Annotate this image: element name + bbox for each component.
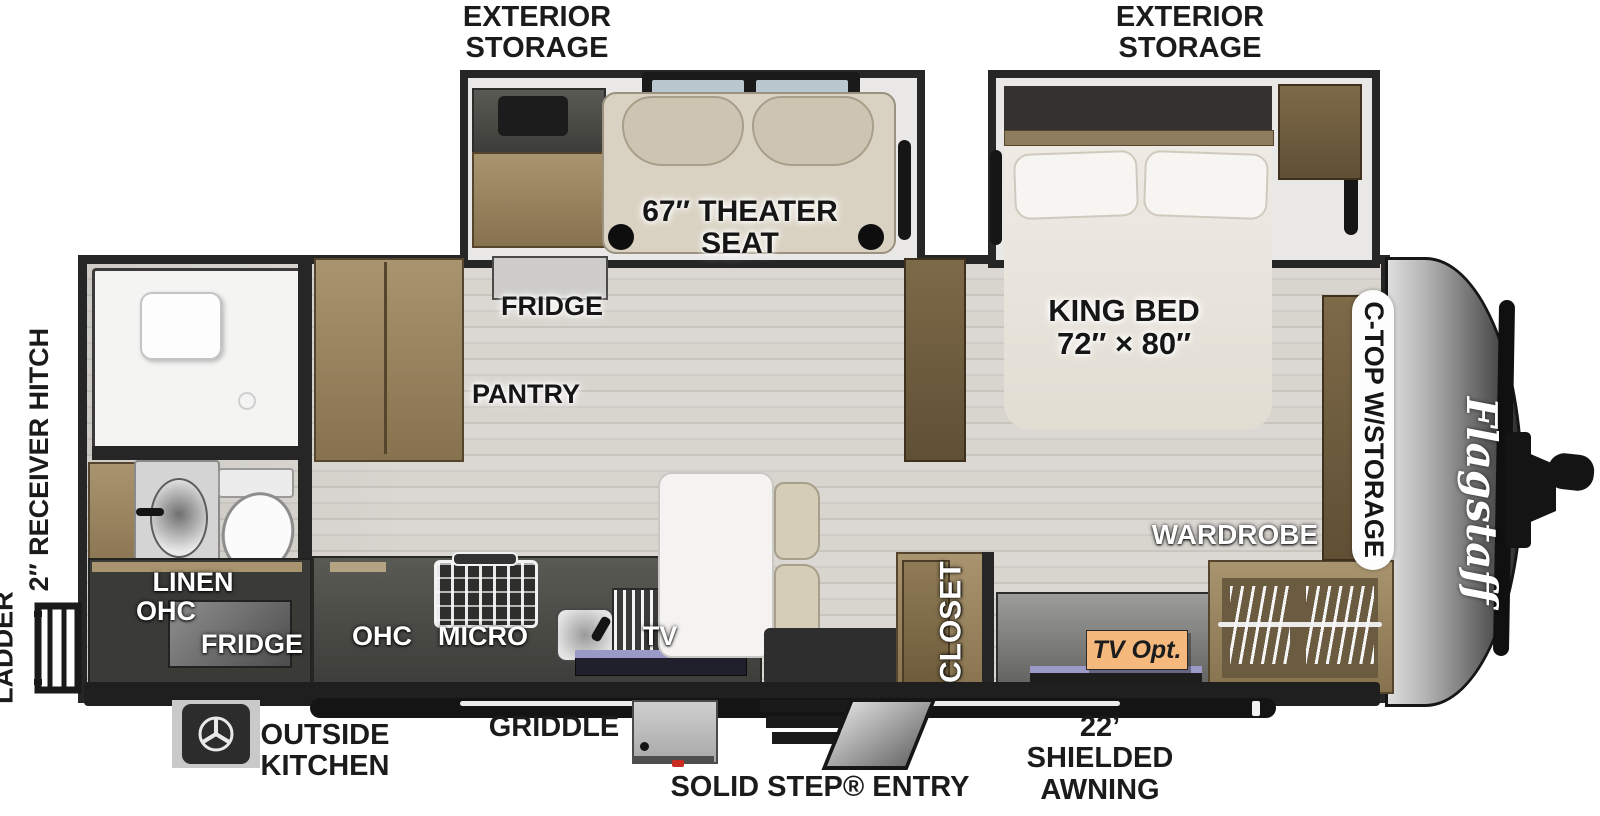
pantry-label: PANTRY (456, 380, 596, 409)
receiver-hitch-label: 2″ RECEIVER HITCH (25, 328, 54, 591)
bed-side-window-left (990, 150, 1002, 245)
theater-side-window (898, 140, 911, 240)
ctop-label-wrap: C-TOP W/STORAGE (1352, 290, 1394, 570)
king-bed-line2: 72″ × 80″ (984, 327, 1264, 360)
hitch-handle (1546, 452, 1596, 493)
bathroom-wall-vertical (298, 255, 312, 575)
rear-fridge-label: FRIDGE (192, 630, 312, 659)
ctop-label: C-TOP W/STORAGE (1358, 302, 1387, 559)
ladder-label: LADDER (0, 591, 19, 704)
chair (774, 482, 820, 560)
headboard-storage (1004, 86, 1272, 130)
vent-fan-glyph (194, 712, 238, 756)
headboard-shelf (1004, 130, 1274, 146)
hutch-tray (498, 96, 568, 136)
theater-seat-label: 67″ THEATER SEAT (590, 196, 890, 261)
griddle-unit (632, 700, 718, 764)
ohc-label: OHC (344, 622, 420, 651)
exterior-storage-line2: STORAGE (1090, 33, 1290, 64)
theater-seat-back (622, 96, 744, 166)
bathroom-wall-horizontal (92, 446, 308, 460)
outside-kitchen-line2: KITCHEN (240, 751, 410, 782)
exterior-storage-line2: STORAGE (437, 33, 637, 64)
closet-label-wrap: CLOSET (912, 552, 992, 692)
theater-seat-line1: 67″ THEATER (590, 196, 890, 228)
griddle-knob (640, 742, 649, 751)
awning-end-cap (1252, 701, 1260, 716)
pillow (1143, 150, 1269, 220)
exterior-storage-label-left: EXTERIOR STORAGE (437, 2, 637, 65)
linen-line2: OHC (128, 597, 258, 626)
micro-label: MICRO (428, 622, 538, 651)
king-bed-label: KING BED 72″ × 80″ (984, 294, 1264, 361)
exterior-storage-line1: EXTERIOR (1090, 2, 1290, 33)
outside-kitchen-line1: OUTSIDE (240, 720, 410, 751)
brand-logo-wrap: Flagstaff (1452, 340, 1512, 660)
linen-ohc-label: LINEN OHC (128, 568, 258, 626)
stove-handle (452, 552, 518, 566)
fridge-label: FRIDGE (482, 292, 622, 321)
awning-label: 22’ SHIELDED AWNING (1005, 712, 1195, 806)
wardrobe-label: WARDROBE (1140, 520, 1330, 550)
closet-label: CLOSET (936, 561, 968, 683)
pantry-seam (384, 262, 387, 454)
entry-mat (764, 628, 902, 686)
bathroom-faucet (136, 508, 164, 516)
exterior-storage-label-right: EXTERIOR STORAGE (1090, 2, 1290, 65)
stove-grate (434, 560, 538, 628)
exterior-storage-line1: EXTERIOR (437, 2, 637, 33)
outside-kitchen-label: OUTSIDE KITCHEN (240, 720, 410, 783)
receiver-hitch-label-wrap: 2″ RECEIVER HITCH (22, 295, 58, 625)
pantry-cabinet (314, 258, 464, 462)
hangers (1306, 586, 1374, 664)
pillow (1013, 150, 1139, 220)
tv-opt-badge: TV Opt. (1086, 630, 1188, 670)
awning-line1: 22’ SHIELDED (1005, 712, 1195, 775)
bathroom-sink (150, 478, 208, 558)
slide-hutch-cabinet (472, 152, 606, 248)
awning-line2: AWNING (1005, 775, 1195, 806)
griddle-label: GRIDDLE (484, 712, 624, 743)
linen-line1: LINEN (128, 568, 258, 597)
theater-seat-line2: SEAT (590, 228, 890, 260)
shower-seat (140, 292, 222, 360)
king-bed-line1: KING BED (984, 294, 1264, 327)
theater-seat-back (752, 96, 874, 166)
tv-opt-label: TV Opt. (1093, 637, 1182, 664)
bedroom-divider-cabinet (904, 258, 966, 462)
solid-step-label: SOLID STEP® ENTRY (650, 772, 990, 803)
tv-label: TV (630, 622, 690, 651)
floorplan-canvas: EXTERIOR STORAGE EXTERIOR STORAGE Flagst… (0, 0, 1600, 816)
ladder-label-wrap: LADDER (0, 585, 22, 710)
hangers (1230, 586, 1290, 664)
griddle-red-knob (672, 760, 684, 767)
shower-drain (238, 392, 256, 410)
brand-logo: Flagstaff (1458, 396, 1507, 603)
bedroom-overhead-cabinet (1278, 84, 1362, 180)
kitchen-shelf-trim (330, 562, 386, 572)
